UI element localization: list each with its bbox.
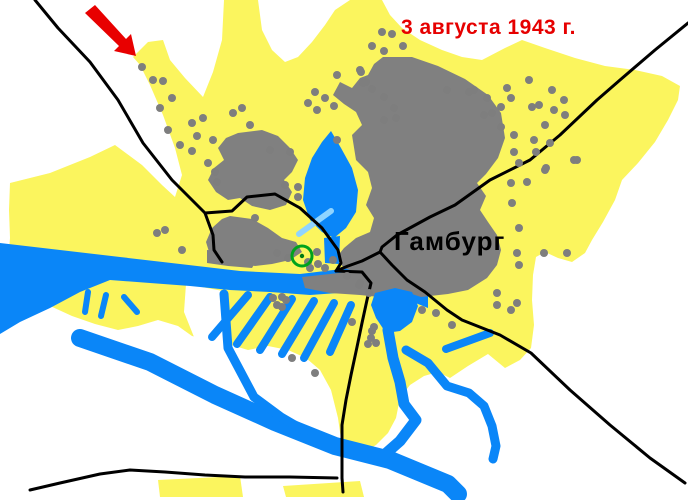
bomb-hit-dot: [368, 327, 376, 335]
bomb-hit-dot: [149, 76, 157, 84]
bomb-hit-dot: [229, 109, 237, 117]
bomb-hit-dot: [348, 318, 356, 326]
bomb-hit-dot: [238, 104, 246, 112]
bomb-hit-dot: [153, 229, 161, 237]
bomb-hit-dot: [388, 30, 396, 38]
bomb-hit-dot: [311, 88, 319, 96]
bomb-hit-dot: [357, 68, 365, 76]
bomb-hit-dot: [380, 93, 388, 101]
bomb-hit-dot: [528, 103, 536, 111]
bomb-hit-dot: [333, 71, 341, 79]
bomb-hit-dot: [368, 85, 376, 93]
bomb-hit-dot: [507, 94, 515, 102]
bomb-hit-dot: [497, 103, 505, 111]
bomb-hit-dot: [199, 114, 207, 122]
bomb-hit-dot: [188, 119, 196, 127]
bomb-hit-dot: [362, 78, 370, 86]
bomb-hit-dot: [378, 28, 386, 36]
attack-arrow-icon: [85, 5, 136, 56]
bomb-hit-dot: [204, 159, 212, 167]
bomb-hit-dot: [330, 102, 338, 110]
date-label: 3 августа 1943 г.: [401, 16, 576, 40]
bomb-hit-dot: [246, 121, 254, 129]
bomb-hit-dot: [560, 96, 568, 104]
bomb-hit-dot: [364, 340, 372, 348]
bomb-hit-dot: [213, 178, 221, 186]
bomb-hit-dot: [510, 148, 518, 156]
bomb-hit-dot: [503, 84, 511, 92]
bomb-hit-dot: [159, 77, 167, 85]
bomb-hit-dot: [535, 101, 543, 109]
bomb-hit-dot: [211, 168, 219, 176]
bomb-hit-dot: [542, 164, 550, 172]
bomb-hit-dot: [343, 272, 351, 280]
bomb-hit-dot: [286, 148, 294, 156]
bomb-hit-dot: [493, 301, 501, 309]
bomb-hit-dot: [281, 181, 289, 189]
bomb-hit-dot: [548, 86, 556, 94]
bomb-hit-dot: [380, 47, 388, 55]
bomb-hit-dot: [488, 109, 496, 117]
bomb-hit-dot: [546, 139, 554, 147]
bomb-hit-dot: [176, 141, 184, 149]
map-canvas: [0, 0, 688, 500]
bomb-hit-dot: [507, 306, 515, 314]
bomb-hit-dot: [156, 104, 164, 112]
bomb-hit-dot: [372, 339, 380, 347]
bomb-hit-dot: [356, 279, 364, 287]
bomb-hit-dot: [380, 116, 388, 124]
bomb-hit-dot: [443, 86, 451, 94]
bomb-hit-dot: [161, 226, 169, 234]
bomb-hit-dot: [178, 246, 186, 254]
bomb-hit-dot: [561, 111, 569, 119]
bomb-hit-dot: [508, 199, 516, 207]
bomb-hit-dot: [418, 306, 426, 314]
bomb-hit-dot: [541, 121, 549, 129]
bomb-hit-dot: [525, 76, 533, 84]
bomb-hit-dot: [304, 99, 312, 107]
bomb-hit-dot: [515, 224, 523, 232]
bomb-hit-dot: [193, 132, 201, 140]
bomb-hit-dot: [273, 249, 281, 257]
bomb-hit-dot: [365, 289, 373, 297]
bomb-hit-dot: [390, 104, 398, 112]
bomb-hit-dot: [313, 248, 321, 256]
city-label: Гамбург: [394, 226, 505, 257]
bomb-hit-dot: [515, 261, 523, 269]
bomb-hit-dot: [448, 321, 456, 329]
bomb-hit-dot: [314, 260, 322, 268]
bomb-hit-dot: [164, 126, 172, 134]
bomb-hit-dot: [251, 214, 259, 222]
bomb-hit-dot: [321, 94, 329, 102]
bomb-hit-dot: [540, 249, 548, 257]
bomb-hit-dot: [563, 249, 571, 257]
bomb-hit-dot: [515, 159, 523, 167]
bomb-hit-dot: [329, 256, 337, 264]
bomb-hit-dot: [550, 106, 558, 114]
bomb-hit-dot: [480, 111, 488, 119]
bomb-hit-dot: [278, 303, 286, 311]
bomb-hit-dot: [282, 296, 290, 304]
bomb-hit-dot: [532, 148, 540, 156]
bomb-hit-dot: [288, 354, 296, 362]
bomb-hit-dot: [188, 147, 196, 155]
bomb-hit-dot: [470, 86, 478, 94]
bomb-hit-dot: [483, 94, 491, 102]
bomb-hit-dot: [530, 136, 538, 144]
bomb-hit-dot: [432, 309, 440, 317]
bomb-hit-dot: [392, 114, 400, 122]
bomb-hit-dot: [138, 63, 146, 71]
bomb-hit-dot: [313, 106, 321, 114]
bomb-hit-dot: [269, 294, 277, 302]
bomb-hit-dot: [510, 131, 518, 139]
bomb-hit-dot: [168, 94, 176, 102]
bomb-hit-dot: [570, 156, 578, 164]
bomb-hit-dot: [513, 249, 521, 257]
bomb-hit-dot: [209, 136, 217, 144]
bomb-hit-dot: [368, 42, 376, 50]
bomb-hit-dot: [507, 179, 515, 187]
bomb-hit-dot: [497, 123, 505, 131]
bomb-hit-dot: [399, 42, 407, 50]
bomb-hit-dot: [513, 299, 521, 307]
bomb-hit-dot: [523, 178, 531, 186]
bomb-hit-dot: [294, 183, 302, 191]
bomb-hit-dot: [321, 264, 329, 272]
bomb-hit-dot: [311, 369, 319, 377]
bomb-hit-dot: [266, 146, 274, 154]
hamburg-bombing-map: 3 августа 1943 г. Гамбург: [0, 0, 688, 500]
bomb-hit-dot: [493, 289, 501, 297]
bomb-hit-dot: [294, 193, 302, 201]
bomb-hit-dot: [333, 136, 341, 144]
